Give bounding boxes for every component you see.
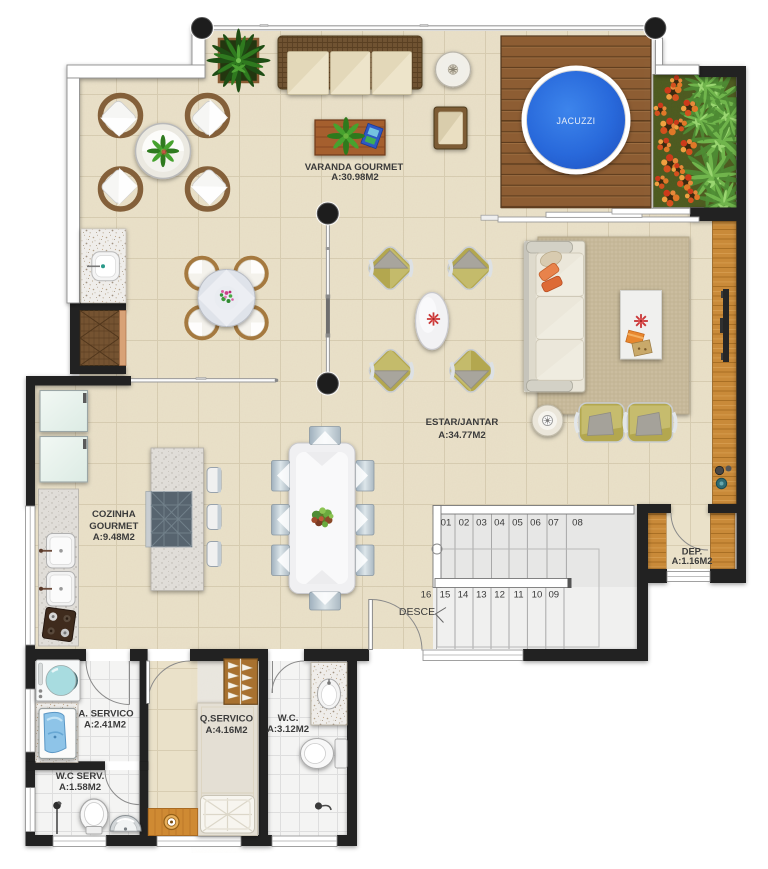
svg-text:01: 01 [441,518,452,529]
svg-text:COZINHA: COZINHA [92,509,136,520]
svg-text:A:30.98M2: A:30.98M2 [331,172,378,183]
svg-text:A:1.58M2: A:1.58M2 [59,782,101,793]
svg-text:A:1.16M2: A:1.16M2 [672,556,713,566]
svg-text:A. SERVICO: A. SERVICO [78,709,134,720]
svg-text:07: 07 [548,518,559,529]
svg-text:13: 13 [476,590,487,601]
svg-text:A:34.77M2: A:34.77M2 [438,430,485,441]
svg-text:06: 06 [530,518,541,529]
svg-text:JACUZZI: JACUZZI [557,116,596,126]
svg-text:W.C.: W.C. [278,713,299,724]
svg-text:ESTAR/JANTAR: ESTAR/JANTAR [426,417,499,428]
svg-text:12: 12 [494,590,505,601]
svg-text:A:2.41M2: A:2.41M2 [84,720,126,731]
svg-text:15: 15 [440,590,451,601]
svg-text:16: 16 [421,590,432,601]
svg-text:02: 02 [459,518,470,529]
svg-text:03: 03 [476,518,487,529]
svg-text:A:9.48M2: A:9.48M2 [93,532,135,543]
svg-text:A:3.12M2: A:3.12M2 [267,724,309,735]
svg-text:08: 08 [572,518,583,529]
svg-text:05: 05 [512,518,523,529]
svg-text:11: 11 [514,590,524,601]
svg-text:10: 10 [532,590,543,601]
svg-text:A:4.16M2: A:4.16M2 [205,725,247,736]
svg-text:GOURMET: GOURMET [89,521,138,532]
svg-text:Q.SERVICO: Q.SERVICO [200,714,254,725]
svg-text:DEP.: DEP. [682,547,703,557]
svg-text:14: 14 [458,590,469,601]
svg-text:04: 04 [494,518,505,529]
svg-text:09: 09 [548,590,559,601]
svg-text:W.C SERV.: W.C SERV. [56,771,105,782]
